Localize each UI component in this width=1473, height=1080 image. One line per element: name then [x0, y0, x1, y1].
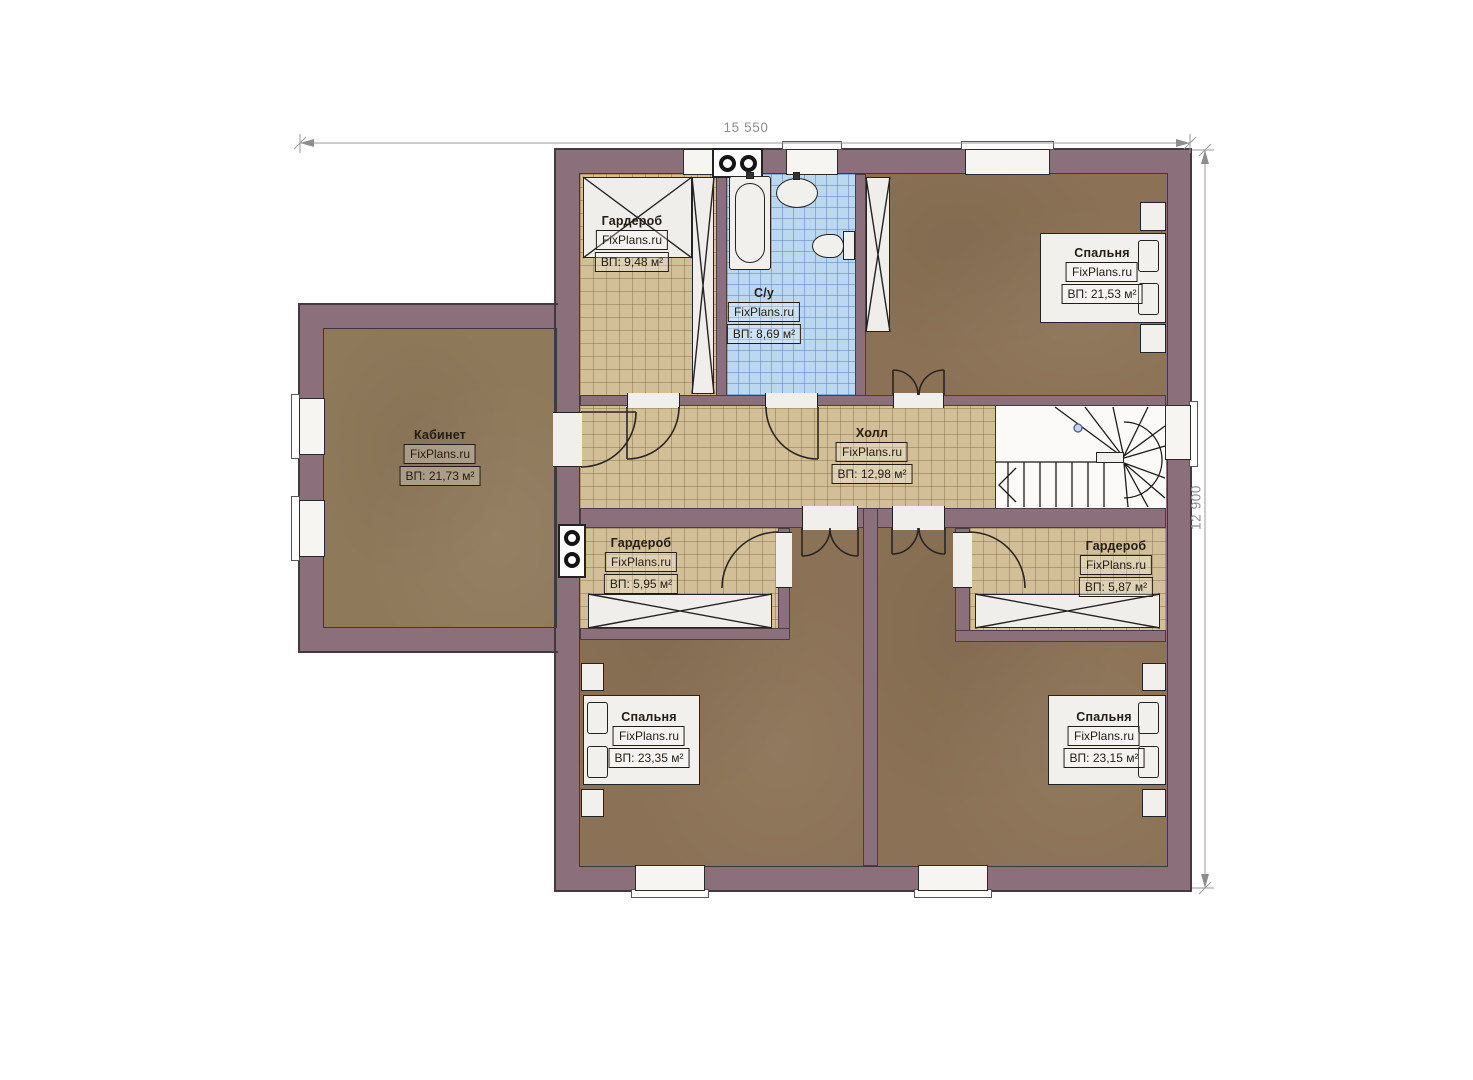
pillow [587, 702, 608, 734]
room-area: ВП: 5,87 м² [1079, 577, 1153, 597]
window [299, 398, 325, 455]
door-opening-bedroom-bottom-left [802, 506, 858, 530]
wing-wall-top [300, 305, 556, 329]
chimney-flue-icon [564, 530, 580, 546]
dimension-height: 12 900 [1189, 482, 1204, 534]
room-area: ВП: 8,69 м² [727, 324, 801, 344]
room-name: Спальня [621, 710, 676, 724]
toilet-bowl [812, 234, 844, 258]
sink [776, 178, 818, 208]
central-bedroom-wall [863, 508, 878, 866]
nightstand [1142, 789, 1166, 817]
nightstand [581, 663, 604, 691]
door-opening-wardrobe-top [627, 393, 680, 408]
bathtub-basin [735, 183, 765, 263]
wardrobe-left-bottom-wall [580, 628, 790, 640]
door-opening-bedroom-top-right [893, 393, 944, 408]
chimney-flue-icon [564, 552, 580, 568]
window [1165, 405, 1191, 460]
room-area: ВП: 23,35 м² [609, 748, 690, 768]
watermark-box: FixPlans.ru [728, 302, 800, 322]
room-name: Гардероб [602, 214, 663, 228]
wing-wall-bottom [300, 627, 556, 651]
room-label-hall: Холл FixPlans.ru ВП: 12,98 м² [832, 426, 913, 484]
room-area: ВП: 12,98 м² [832, 464, 913, 484]
watermark-box: FixPlans.ru [605, 552, 677, 572]
window [918, 865, 988, 891]
door-opening-bedroom-bottom-right [892, 506, 945, 530]
nightstand [1142, 663, 1166, 691]
toilet-tank [843, 231, 855, 260]
closet-box [975, 594, 1160, 628]
wall-top [556, 150, 1190, 174]
room-label-bedroom-bottom-left: Спальня FixPlans.ru ВП: 23,35 м² [609, 710, 690, 768]
room-label-office: Кабинет FixPlans.ru ВП: 21,73 м² [400, 428, 481, 486]
room-name: Гардероб [1086, 539, 1147, 553]
partition-bath-bedroom [855, 174, 866, 396]
closet-box [866, 177, 890, 332]
room-label-bedroom-bottom-right: Спальня FixPlans.ru ВП: 23,15 м² [1064, 710, 1145, 768]
door-opening-bathroom [765, 393, 818, 408]
window [683, 149, 714, 175]
watermark-box: FixPlans.ru [1080, 555, 1152, 575]
window [299, 500, 325, 557]
room-name: Гардероб [611, 536, 672, 550]
room-label-bathroom: С/у FixPlans.ru ВП: 8,69 м² [727, 286, 801, 344]
nightstand [1140, 324, 1166, 353]
wardrobe-right-bottom-wall [955, 630, 1166, 642]
watermark-box: FixPlans.ru [596, 230, 668, 250]
stair-landing-rail [1096, 452, 1124, 463]
room-name: Кабинет [414, 428, 466, 442]
wall-right [1166, 150, 1190, 890]
room-area: ВП: 23,15 м² [1064, 748, 1145, 768]
window [635, 865, 705, 891]
chimney-flue-icon [740, 155, 757, 172]
window [965, 149, 1050, 175]
door-opening-wardrobe-right [953, 532, 972, 588]
watermark-box: FixPlans.ru [1068, 726, 1140, 746]
closet-box [588, 594, 772, 628]
partition-wardrobe-bath [716, 174, 727, 396]
room-label-wardrobe-left: Гардероб FixPlans.ru ВП: 5,95 м² [604, 536, 678, 594]
floor-plan: Гардероб FixPlans.ru ВП: 9,48 м² С/у Fix… [0, 0, 1473, 1080]
room-label-wardrobe-top: Гардероб FixPlans.ru ВП: 9,48 м² [595, 214, 669, 272]
watermark-box: FixPlans.ru [613, 726, 685, 746]
watermark-box: FixPlans.ru [404, 444, 476, 464]
watermark-box: FixPlans.ru [836, 442, 908, 462]
wing-wall-left [300, 305, 324, 651]
bath-tap-icon [746, 172, 754, 179]
room-label-wardrobe-right: Гардероб FixPlans.ru ВП: 5,87 м² [1079, 539, 1153, 597]
staircase-area [995, 406, 1166, 508]
room-label-bedroom-top-right: Спальня FixPlans.ru ВП: 21,53 м² [1062, 246, 1143, 304]
door-opening-office [553, 412, 582, 467]
room-area: ВП: 21,73 м² [400, 466, 481, 486]
nightstand [581, 789, 604, 817]
room-name: Холл [856, 426, 888, 440]
door-opening-wardrobe-left [776, 532, 792, 588]
room-area: ВП: 9,48 м² [595, 252, 669, 272]
chimney-flue-icon [719, 155, 736, 172]
closet-box [692, 177, 714, 394]
dimension-width: 15 550 [710, 120, 782, 135]
room-name: Спальня [1076, 710, 1131, 724]
room-name: Спальня [1074, 246, 1129, 260]
sink-tap-icon [793, 172, 800, 180]
room-area: ВП: 5,95 м² [604, 574, 678, 594]
room-area: ВП: 21,53 м² [1062, 284, 1143, 304]
nightstand [1140, 202, 1166, 231]
watermark-box: FixPlans.ru [1066, 262, 1138, 282]
room-name: С/у [754, 286, 774, 300]
wall-left [556, 150, 580, 890]
pillow [587, 746, 608, 778]
